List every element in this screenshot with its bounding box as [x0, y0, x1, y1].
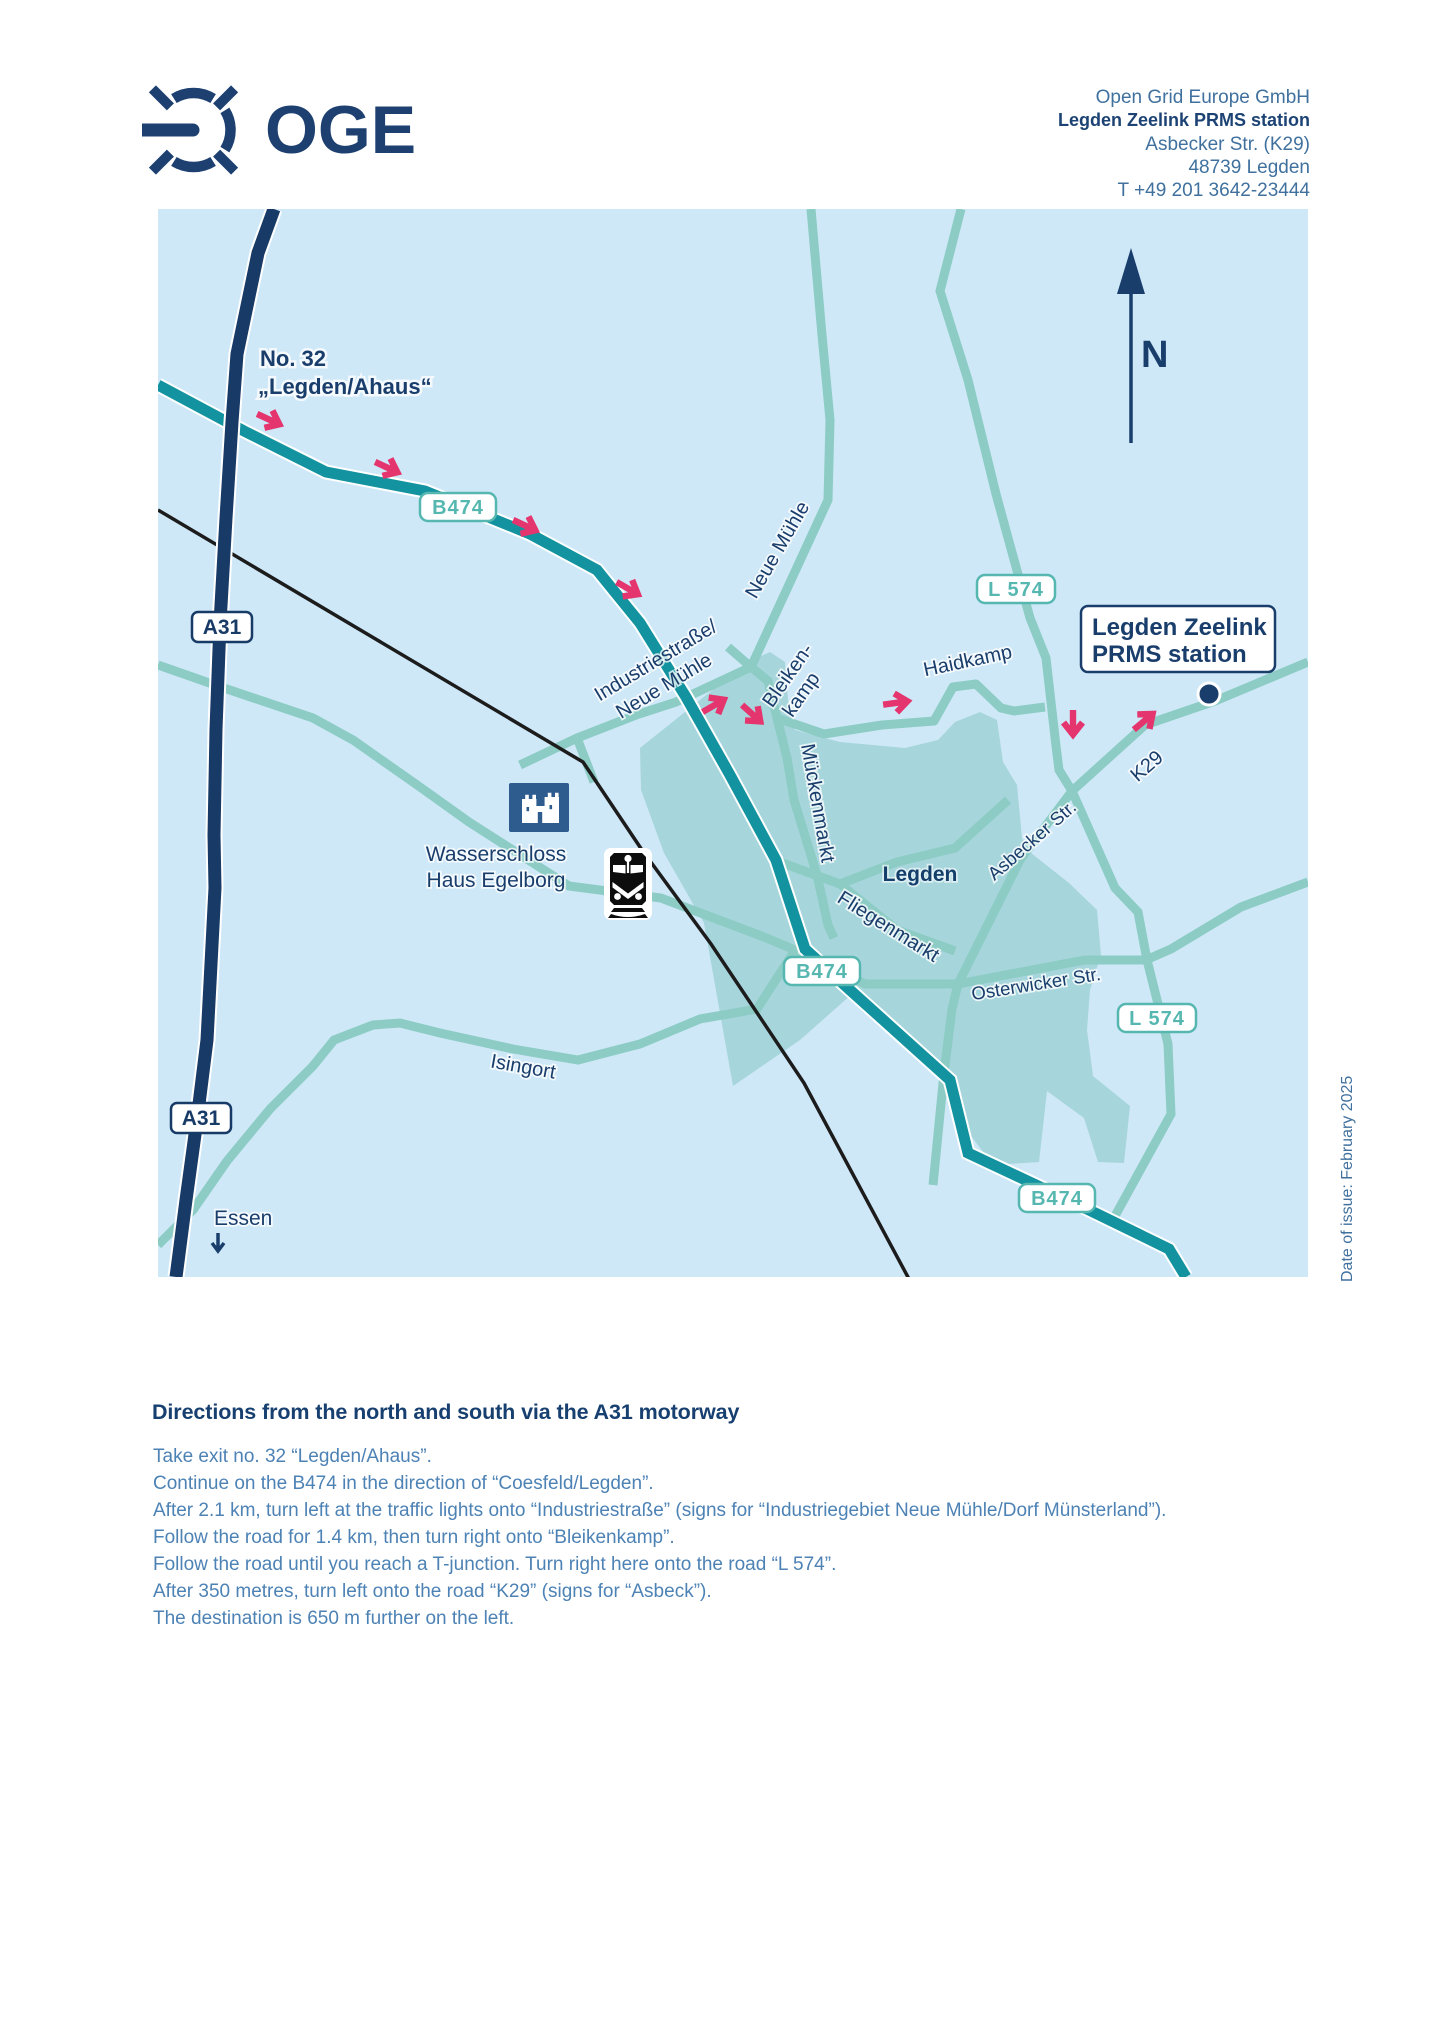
svg-text:PRMS station: PRMS station: [1092, 641, 1247, 668]
svg-text:B474: B474: [432, 497, 484, 519]
svg-text:OGE: OGE: [265, 92, 416, 168]
svg-text:B474: B474: [796, 961, 848, 983]
svg-text:N: N: [1141, 334, 1168, 376]
svg-text:A31: A31: [203, 616, 242, 639]
svg-text:L 574: L 574: [1129, 1008, 1185, 1030]
svg-text:L 574: L 574: [988, 579, 1044, 601]
svg-text:„Legden/Ahaus“: „Legden/Ahaus“: [258, 374, 432, 399]
svg-text:Essen: Essen: [214, 1207, 272, 1230]
svg-text:Legden Zeelink: Legden Zeelink: [1092, 614, 1267, 641]
svg-text:Legden: Legden: [883, 863, 958, 886]
svg-text:B474: B474: [1031, 1188, 1083, 1210]
svg-text:A31: A31: [182, 1107, 221, 1130]
svg-text:No. 32: No. 32: [260, 346, 326, 371]
svg-text:Wasserschloss: Wasserschloss: [426, 843, 566, 866]
svg-text:Haus Egelborg: Haus Egelborg: [427, 869, 566, 892]
